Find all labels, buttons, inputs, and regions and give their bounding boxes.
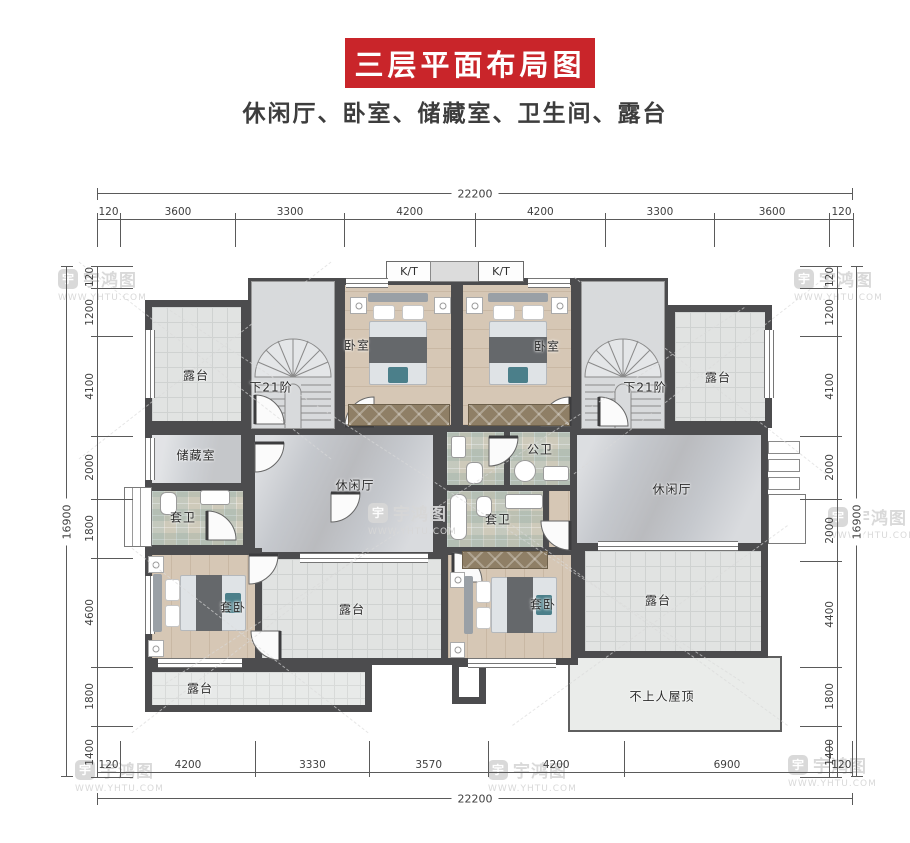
page-subtitle: 休闲厅、卧室、储藏室、卫生间、露台: [0, 94, 910, 128]
terrace-top-left: [145, 300, 248, 428]
room-label-bedroom: 卧室: [534, 338, 560, 355]
dim-segment: 4400: [822, 562, 837, 668]
room-label-terrace: 露台: [645, 592, 671, 609]
room-label-stairs: 下21阶: [249, 379, 292, 396]
room-label-suite-bedroom: 套卧: [220, 599, 246, 616]
dim-segment: 3300: [236, 204, 344, 219]
dim-top-segments: 120 3600 3300 4200 4200 3300 3600 120: [97, 204, 853, 220]
window: [145, 330, 155, 398]
sink: [200, 490, 230, 505]
wardrobe: [348, 404, 450, 426]
dim-bottom-total: 22200: [97, 798, 853, 799]
room-label-stairs: 下21阶: [623, 379, 666, 396]
watermark-logo-icon: 宇: [794, 269, 814, 289]
dim-left-segments: 120 1200 4100 2000 1800 4600 1800 1400: [82, 266, 98, 778]
dim-segment: 4100: [822, 336, 837, 436]
bay-window: [124, 487, 152, 547]
room-label-ensuite-bath: 套卫: [485, 511, 511, 528]
dim-segment: 2000: [822, 437, 837, 500]
wardrobe: [462, 551, 548, 569]
dim-segment: 1200: [822, 288, 837, 336]
dim-segment: 6900: [624, 757, 830, 772]
window: [145, 438, 155, 480]
dim-segment: 4100: [82, 336, 97, 436]
watermark: 宇宇鸿图 WWW.YHTU.COM: [794, 266, 883, 303]
door-arc: [540, 518, 573, 551]
wardrobe: [468, 404, 570, 426]
ac-platform-left: K/T: [386, 261, 432, 282]
window: [346, 278, 388, 288]
sliding-door: [598, 541, 738, 551]
dim-segment: 3570: [369, 757, 488, 772]
room-label-lounge: 休闲厅: [652, 481, 691, 498]
dim-segment: 3600: [714, 204, 830, 219]
room-label-roof: 不上人屋顶: [629, 688, 694, 705]
room-label-suite-bedroom: 套卧: [530, 596, 556, 613]
terrace-top-right: [668, 305, 772, 428]
window: [158, 658, 242, 668]
floorplan-page: 三层平面布局图 休闲厅、卧室、储藏室、卫生间、露台 22200 120 3600…: [0, 0, 910, 843]
dim-segment: 120: [82, 266, 97, 288]
door-arc: [596, 396, 629, 429]
dim-left-total: 16900: [66, 266, 67, 777]
window: [528, 278, 570, 288]
door-arc: [252, 394, 285, 427]
room-label-public-bath: 公卫: [527, 441, 553, 458]
bedroom-divider-wall: [451, 284, 463, 426]
dim-right-segments: 120 1200 4100 2000 2000 4400 1800 1400: [822, 266, 838, 778]
dim-right-total-value: 16900: [851, 498, 864, 545]
watermark: 宇宇鸿图 WWW.YHTU.COM: [58, 266, 147, 303]
dim-segment: 1800: [822, 667, 837, 726]
room-label-terrace: 露台: [187, 680, 213, 697]
dim-top-total-value: 22200: [452, 188, 499, 201]
nightstand: [466, 297, 483, 314]
balcony-rail: [768, 494, 806, 544]
dim-right-total: 16900: [856, 266, 857, 777]
room-label-bedroom: 卧室: [344, 337, 370, 354]
nightstand: [551, 297, 568, 314]
bed: [366, 293, 430, 389]
terrace-bottom-right: [578, 544, 768, 658]
room-label-ensuite-bath: 套卫: [170, 509, 196, 526]
dim-segment: 120: [97, 757, 120, 772]
nightstand: [350, 297, 367, 314]
ac-platform-label: K/T: [492, 265, 510, 278]
sink: [451, 436, 466, 458]
dim-bottom-segments: 120 4200 3330 3570 4200 6900 120: [97, 757, 853, 773]
room-label-storage: 储藏室: [176, 447, 215, 464]
nightstand: [148, 556, 164, 573]
dim-segment: 4600: [82, 558, 97, 667]
watermark-logo-icon: 宇: [58, 269, 78, 289]
terrace-bottom-left-small: [145, 665, 372, 712]
sliding-door: [300, 553, 428, 563]
title-banner: 三层平面布局图: [345, 38, 595, 88]
dim-segment: 4200: [475, 204, 606, 219]
dim-segment: 2000: [82, 437, 97, 500]
nightstand: [450, 642, 465, 658]
sink: [543, 466, 569, 481]
flue-box: [430, 261, 480, 282]
nightstand: [148, 640, 164, 657]
dim-segment: 120: [97, 204, 120, 219]
toilet: [466, 462, 483, 484]
dim-bottom-total-value: 22200: [452, 793, 499, 806]
dim-segment: 4200: [120, 757, 256, 772]
sink: [505, 494, 543, 509]
nightstand: [450, 572, 465, 588]
dim-segment: 3600: [120, 204, 236, 219]
dim-segment: 3330: [256, 757, 369, 772]
room-label-terrace: 露台: [705, 369, 731, 386]
page-title: 三层平面布局图: [354, 42, 585, 84]
dim-segment: 1400: [822, 726, 837, 778]
nightstand: [434, 297, 451, 314]
dim-segment: 1800: [82, 499, 97, 558]
ac-louver: [768, 459, 800, 472]
door-arc: [486, 434, 519, 467]
dim-segment: 4200: [488, 757, 624, 772]
door-arc: [328, 490, 361, 523]
shower: [514, 460, 536, 482]
bathtub: [450, 494, 467, 540]
dim-top-total: 22200: [97, 193, 853, 194]
ac-platform-right: K/T: [478, 261, 524, 282]
dim-segment: 120: [822, 266, 837, 288]
dim-left-total-value: 16900: [61, 498, 74, 545]
dim-segment: 4200: [344, 204, 475, 219]
dim-segment: 1200: [82, 288, 97, 336]
dim-segment: 1800: [82, 667, 97, 726]
ac-louver: [768, 477, 800, 490]
ac-louver: [768, 441, 800, 454]
dim-segment: 1400: [82, 726, 97, 778]
watermark: 宇宇鸿图 WWW.YHTU.COM: [828, 504, 910, 541]
room-label-terrace: 露台: [183, 367, 209, 384]
door-arc: [246, 552, 279, 585]
dim-segment: 120: [830, 204, 853, 219]
room-label-terrace: 露台: [339, 601, 365, 618]
window: [468, 658, 556, 668]
ac-platform-label: K/T: [400, 265, 418, 278]
door-arc: [204, 510, 237, 543]
dim-segment: 2000: [822, 499, 837, 562]
door-arc: [252, 440, 285, 473]
window: [764, 330, 774, 398]
door-arc: [250, 628, 283, 661]
room-label-lounge: 休闲厅: [335, 477, 374, 494]
dim-segment: 3300: [606, 204, 714, 219]
